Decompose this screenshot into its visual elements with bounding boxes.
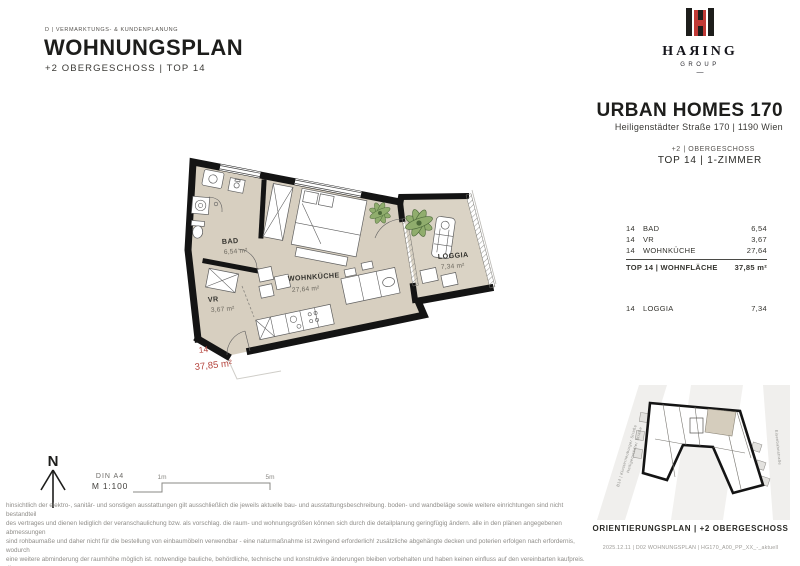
floorplan-sheet: D | VERMARKTUNGS- & KUNDENPLANUNG WOHNUN…	[0, 0, 800, 566]
scale-tick-5m: 5m	[265, 474, 274, 481]
table-row: 14 WOHNKÜCHE 27,64	[626, 245, 767, 256]
scale-tick-1m: 1m	[157, 474, 166, 481]
wall-stub	[413, 286, 415, 300]
project-floor: +2 | OBERGESCHOSS	[672, 146, 755, 153]
compass-north-label: N	[48, 453, 59, 470]
room-label-vr: VR	[208, 294, 220, 304]
brand-dash: —	[640, 69, 760, 76]
scale-bar	[133, 483, 270, 492]
table-row-loggia: 14 LOGGIA 7,34	[626, 303, 767, 314]
table-row: 14 BAD 6,54	[626, 223, 767, 234]
file-info: 2025.12.11 | D02 WOHNUNGSPLAN | HG170_A0…	[588, 545, 793, 551]
page-title: WOHNUNGSPLAN	[44, 35, 243, 61]
highlighted-unit	[705, 409, 736, 436]
project-unit: TOP 14 | 1-ZIMMER	[658, 155, 762, 166]
page-subtitle: +2 OBERGESCHOSS | TOP 14	[45, 63, 206, 74]
document-category: D | VERMARKTUNGS- & KUNDENPLANUNG	[45, 27, 178, 33]
unit-number: 14	[198, 344, 209, 355]
orientation-caption: ORIENTIERUNGSPLAN | +2 OBERGESCHOSS	[588, 524, 793, 533]
table-total-row: TOP 14 | WOHNFLÄCHE 37,85 m²	[626, 259, 767, 273]
disclaimer-line: hinsichtlich der elektro-, sanitär- und …	[6, 501, 592, 519]
legal-disclaimer: hinsichtlich der elektro-, sanitär- und …	[6, 501, 592, 566]
haring-emblem-icon	[686, 8, 714, 36]
loggia-table	[441, 272, 458, 287]
brand-group: GROUP	[640, 62, 760, 68]
washbasin	[228, 178, 245, 194]
area-table: 14 BAD 6,54 14 VR 3,67 14 WOHNKÜCHE 27,6…	[626, 223, 767, 314]
room-label-bad: BAD	[222, 236, 239, 246]
table-row: 14 VR 3,67	[626, 234, 767, 245]
company-logo: HAЯING GROUP —	[640, 8, 760, 76]
washing-machine	[191, 196, 209, 214]
disclaimer-line: sind rohbaumaße und daher nicht für die …	[6, 537, 592, 555]
loggia-table	[420, 267, 438, 283]
apartment-floorplan: BAD 6,54 m² VR 3,67 m² WOHNKÜCHE 27,64 m…	[165, 145, 510, 383]
disclaimer-line: eine weitere abminderung der raumhöhe mö…	[6, 555, 592, 566]
wall-stub	[400, 202, 402, 219]
brand-name: HAЯING	[640, 44, 760, 60]
wall-bad-wohnkueche	[261, 182, 264, 236]
corridor-outline	[227, 357, 281, 379]
paper-size-label: DIN A4	[96, 473, 124, 480]
disclaimer-line: des vertrages und dienen lediglich der v…	[6, 519, 592, 537]
project-address: Heiligenstädter Straße 170 | 1190 Wien	[615, 122, 783, 132]
orientation-plan: Heiligenstädter Straße B14 | Klosterneub…	[595, 385, 790, 520]
scale-label: M 1:100	[92, 481, 128, 491]
project-name: URBAN HOMES 170	[596, 100, 783, 122]
bed	[289, 188, 367, 267]
unit-total-area: 37,85 m²	[194, 358, 232, 373]
bathtub	[202, 169, 225, 189]
